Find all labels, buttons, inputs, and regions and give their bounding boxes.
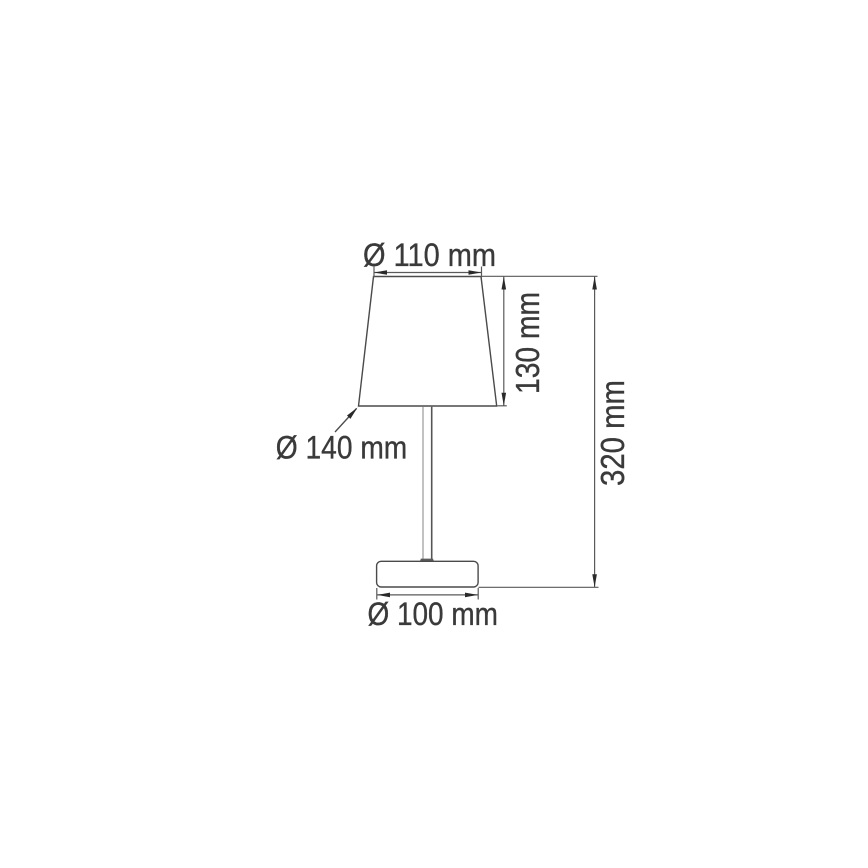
- svg-text:Ø 140 mm: Ø 140 mm: [276, 429, 408, 465]
- svg-text:Ø 110 mm: Ø 110 mm: [363, 237, 496, 273]
- svg-text:Ø 100 mm: Ø 100 mm: [367, 596, 498, 632]
- svg-text:130 mm: 130 mm: [509, 292, 546, 394]
- svg-text:320 mm: 320 mm: [594, 380, 631, 486]
